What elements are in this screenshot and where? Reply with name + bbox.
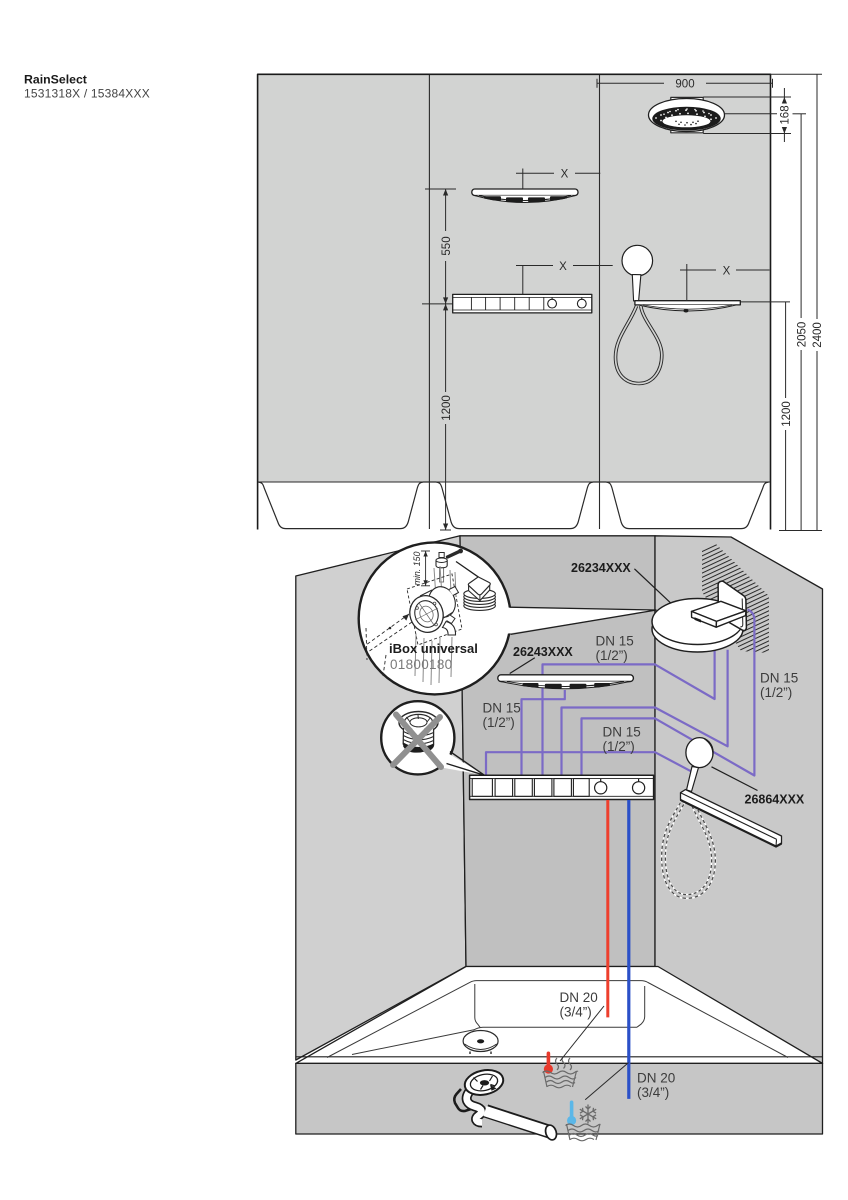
svg-text:(1/2”): (1/2”) <box>760 685 792 700</box>
svg-text:1200: 1200 <box>781 401 793 427</box>
svg-text:(1/2”): (1/2”) <box>483 715 515 730</box>
svg-text:1531318X / 15384XXX: 1531318X / 15384XXX <box>24 87 150 101</box>
svg-text:1200: 1200 <box>441 395 453 421</box>
svg-text:DN 15: DN 15 <box>483 701 521 716</box>
svg-text:26864XXX: 26864XXX <box>745 793 805 807</box>
svg-text:X: X <box>561 169 569 181</box>
svg-text:550: 550 <box>441 236 453 255</box>
svg-text:(1/2”): (1/2”) <box>596 648 628 663</box>
svg-text:DN 20: DN 20 <box>637 1071 675 1086</box>
svg-text:min. 150: min. 150 <box>412 552 422 586</box>
svg-text:DN 15: DN 15 <box>603 725 641 740</box>
svg-text:iBox universal: iBox universal <box>389 641 478 656</box>
svg-text:900: 900 <box>675 78 694 90</box>
svg-text:DN 20: DN 20 <box>560 990 598 1005</box>
svg-text:26234XXX: 26234XXX <box>571 561 631 575</box>
svg-text:DN 15: DN 15 <box>760 671 798 686</box>
svg-text:2400: 2400 <box>812 322 824 348</box>
svg-text:DN 15: DN 15 <box>596 634 634 649</box>
svg-text:168: 168 <box>780 105 792 124</box>
svg-text:26243XXX: 26243XXX <box>513 645 573 659</box>
svg-text:(3/4”): (3/4”) <box>560 1005 592 1020</box>
svg-text:01800180: 01800180 <box>390 657 452 672</box>
svg-text:(1/2”): (1/2”) <box>603 739 635 754</box>
svg-text:2050: 2050 <box>796 322 808 348</box>
svg-text:X: X <box>723 265 731 277</box>
svg-text:X: X <box>559 261 567 273</box>
svg-text:RainSelect: RainSelect <box>24 73 87 87</box>
svg-text:(3/4”): (3/4”) <box>637 1085 669 1100</box>
